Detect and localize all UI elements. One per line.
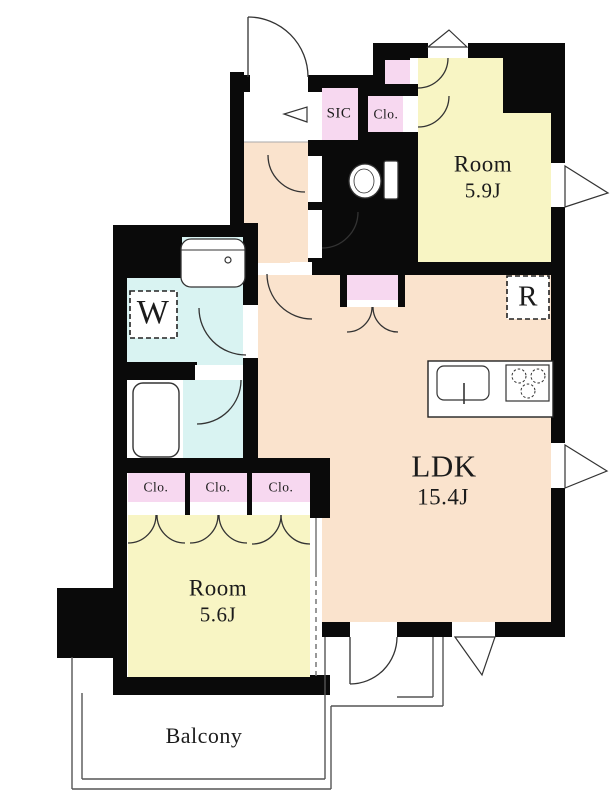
balcony-door-opening [350, 622, 397, 637]
casement-bottom-icon [455, 637, 495, 675]
wall-closet-divider-1 [185, 473, 190, 515]
balcony-label: Balcony [166, 725, 243, 747]
wall-partition-foot [310, 675, 330, 695]
bathtub [133, 383, 179, 457]
sic-door-opening [308, 92, 322, 140]
wall-closet-row-cap [310, 460, 330, 518]
toilet-door-opening [308, 156, 322, 202]
closet-upper-label: Clo. [374, 107, 399, 121]
room-lower-size: 5.6J [200, 605, 236, 626]
bathroom-floor [183, 380, 243, 460]
balcony-door-arc [350, 637, 397, 684]
room-upper-name: Room [454, 153, 512, 176]
room-upper-door-opening [308, 210, 322, 258]
washroom-door-opening [243, 305, 258, 358]
ldk-door-opening [290, 262, 312, 275]
floor-plan: SIC Clo. Room 5.9J W R LDK 15.4J Clo. Cl… [0, 0, 616, 800]
wall-right [551, 43, 565, 637]
ldk-closet-front [347, 300, 398, 307]
window-right2-opening [551, 443, 565, 488]
closet1-label: Clo. [144, 480, 169, 494]
toilet-tank [384, 161, 398, 199]
closet2-label: Clo. [206, 480, 231, 494]
wall-bath-top [127, 362, 197, 380]
window-right1-opening [551, 163, 565, 207]
wall-ldk-bottom-b [397, 622, 452, 637]
entrance-door-arc [248, 17, 308, 77]
wall-top [373, 43, 565, 58]
closet3-front [252, 502, 310, 515]
casement-right2-icon [565, 445, 607, 488]
wall-washroom-corner [127, 237, 182, 278]
closet-upper-area [385, 60, 410, 84]
ldk-floor-low [322, 518, 553, 622]
wall-ldk-bottom-c [495, 622, 565, 637]
refrigerator-label: R [518, 283, 538, 312]
floor-plan-drawing [0, 0, 616, 800]
room-upper-size: 5.9J [465, 181, 501, 202]
closet-upper-door-opening [410, 58, 418, 84]
closet3-label: Clo. [269, 480, 294, 494]
wall-bottom [113, 677, 330, 695]
closet1-front [128, 502, 185, 515]
ldk-name: LDK [411, 451, 476, 482]
ldk-size: 15.4J [417, 486, 469, 509]
wall-entrance-left [230, 75, 250, 92]
window-bottom-opening [452, 622, 495, 637]
casement-right1-icon [565, 166, 608, 207]
wall-top-right-block [503, 58, 551, 113]
wall-pillar-bottom-left [57, 588, 113, 658]
washing-machine-label: W [137, 296, 170, 330]
bath-door-opening [195, 365, 243, 380]
wall-closet-row-top [113, 458, 330, 473]
closet2-front [190, 502, 247, 515]
washbasin [181, 239, 245, 287]
washbasin-faucet [225, 257, 231, 263]
closet-door-opening [403, 96, 418, 132]
ldk-closet-area [347, 275, 398, 300]
room-lower-name: Room [189, 577, 247, 600]
sic-label: SIC [327, 107, 352, 122]
entrance-door-opening [250, 75, 308, 92]
casement-top-icon [428, 30, 467, 47]
wall-washroom-top [113, 225, 244, 237]
kitchen-sink [437, 366, 489, 400]
wall-left-upper [230, 72, 244, 237]
wall-ldk-bottom-a [320, 622, 350, 637]
wall-closet-divider-2 [247, 473, 252, 515]
